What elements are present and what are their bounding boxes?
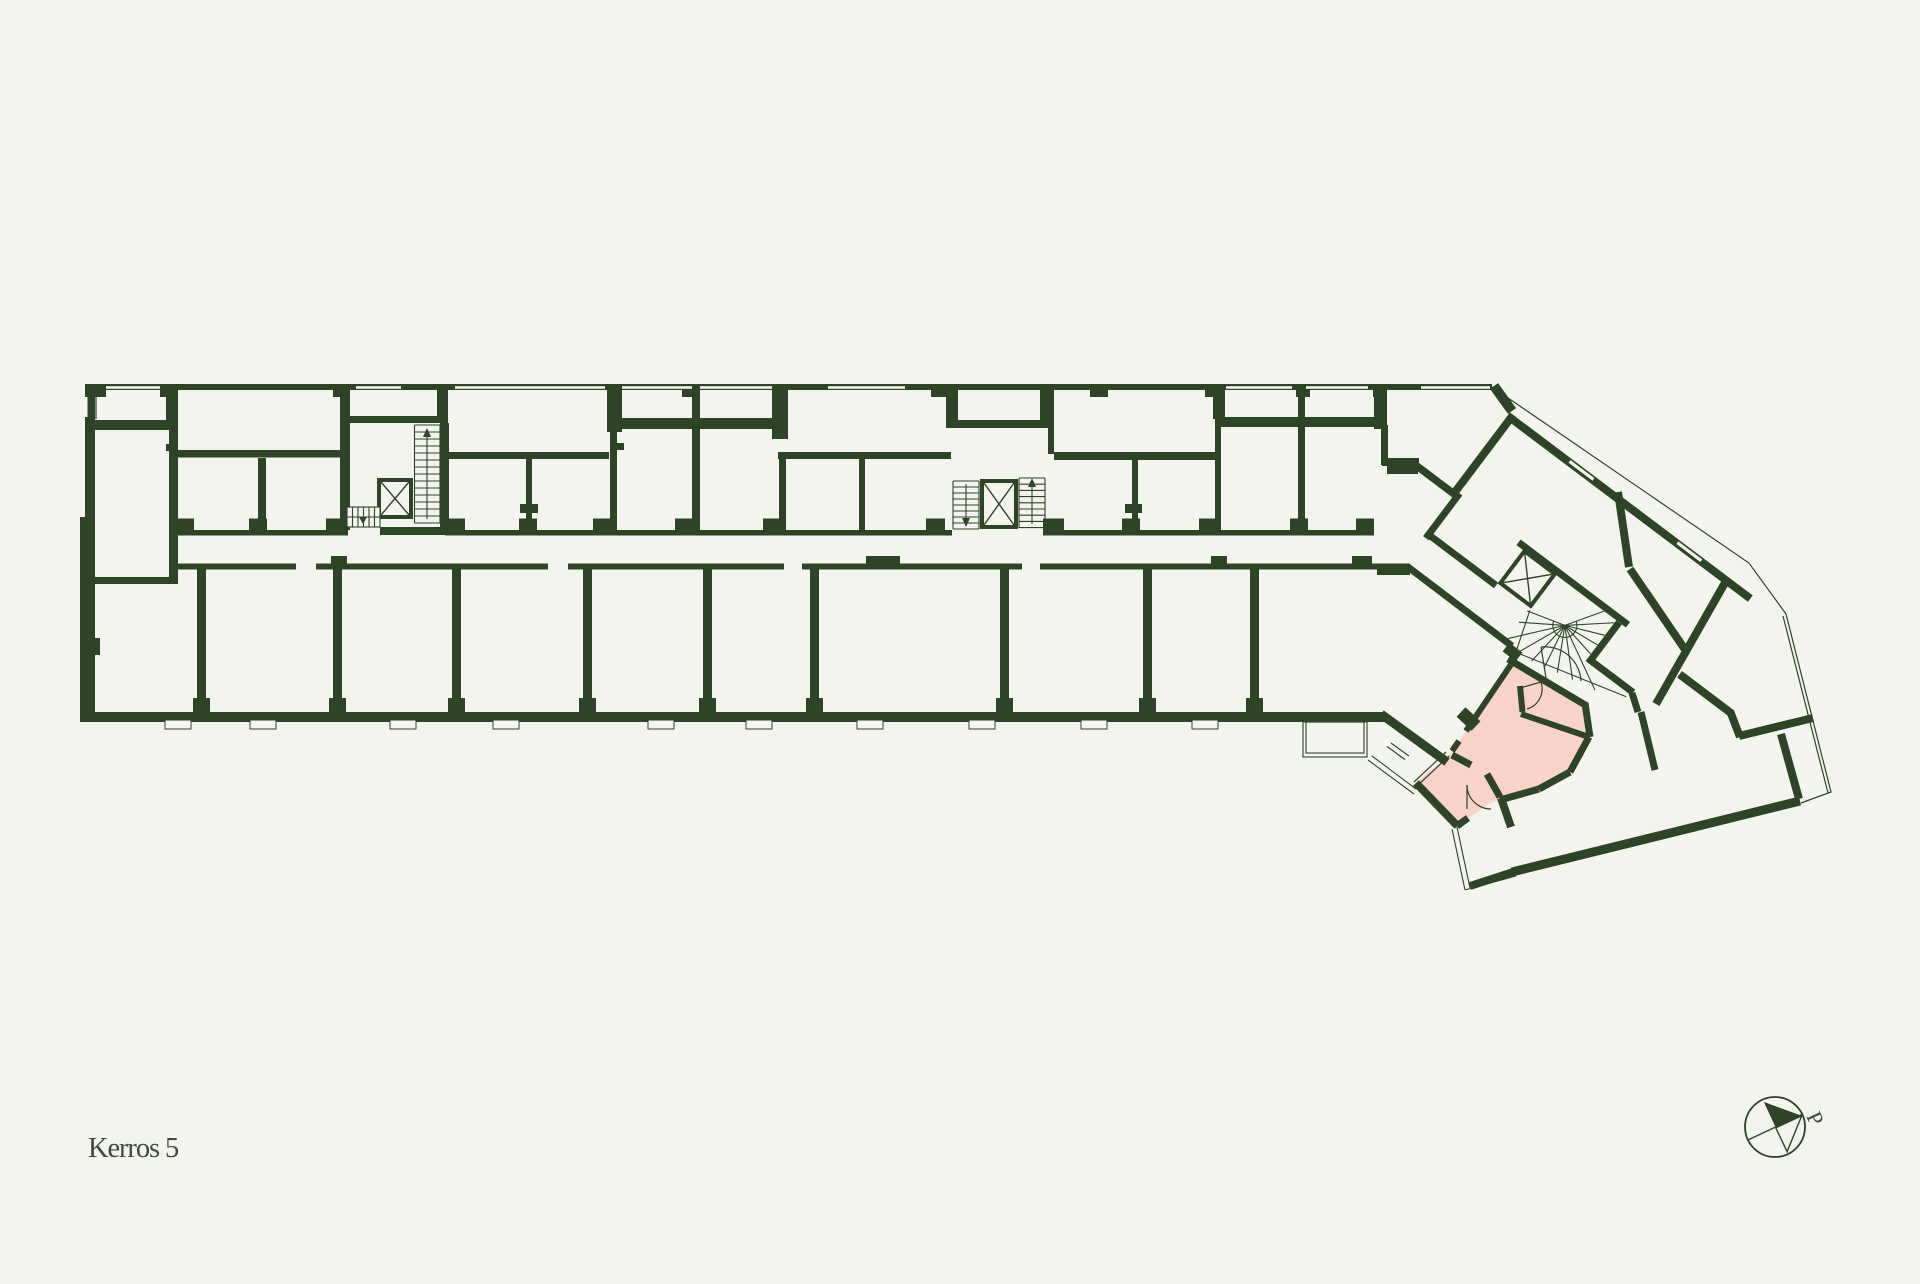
svg-text:Kerros 5: Kerros 5 [88, 1133, 179, 1164]
